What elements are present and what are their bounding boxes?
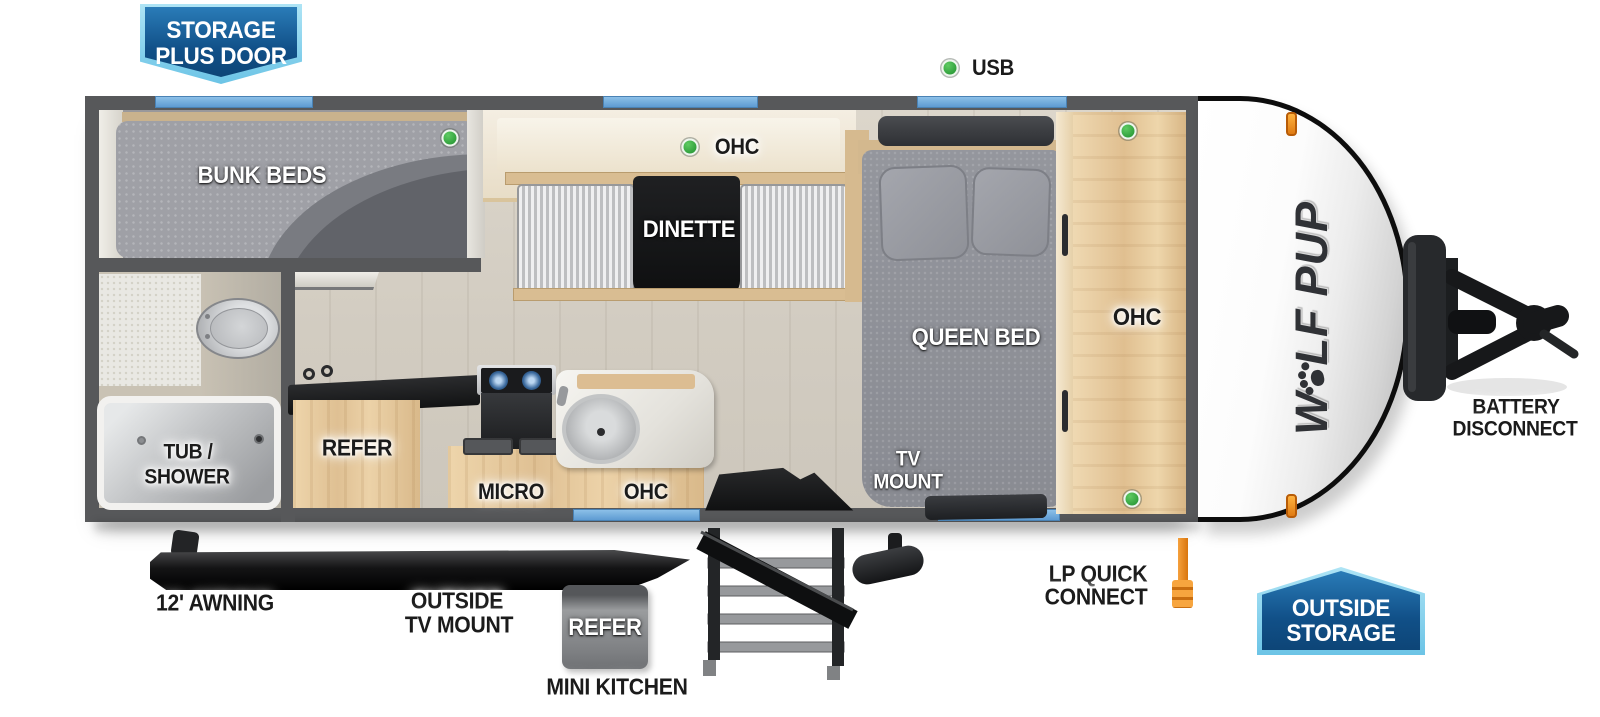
dinette-label: DINETTE [643, 218, 736, 242]
storage-plus-door-line2: PLUS DOOR [145, 43, 297, 71]
wolfpup-logo: WLFPUP [1286, 201, 1338, 435]
usb-indicator-dot [942, 60, 959, 77]
outside-tv-mount-label-line1: OUTSIDE [411, 590, 503, 613]
marker-light-bottom [1286, 494, 1297, 518]
bunk-indicator-dot [442, 130, 459, 147]
shower-knob-left [137, 436, 146, 445]
paw-print-icon [1309, 368, 1325, 386]
outside-storage-line1: OUTSIDE [1262, 595, 1420, 623]
sink-drain [597, 428, 605, 436]
tv-mount-label-line1: TV [896, 449, 920, 470]
lp-quick-connect-label-line2: CONNECT [1045, 586, 1148, 609]
wardrobe-handle-bottom [1062, 390, 1068, 432]
logo-letter-w: W [1286, 392, 1337, 435]
storage-plus-door-badge: STORAGE PLUS DOOR [140, 4, 302, 84]
kitchen-ohc-label: OHC [624, 481, 668, 503]
window-dinette [603, 96, 758, 108]
toilet-hinge-top [205, 314, 210, 319]
window-bedroom [917, 96, 1067, 108]
bedroom-ohc-label: OHC [1113, 306, 1161, 330]
logo-letters-lf: LF [1286, 309, 1337, 366]
bed-shelf-bar [878, 116, 1054, 146]
wardrobe-handle-top [1062, 214, 1068, 256]
outside-tv-mount-label-line2: TV MOUNT [405, 614, 513, 637]
trailer-ground-shadow [95, 522, 1200, 536]
dinette-ohc-label: OHC [715, 136, 759, 158]
floorplan-diagram: BUNK BEDS TUB / SHOWER REFER MICRO OHC O… [0, 0, 1600, 717]
pillow-right [970, 167, 1051, 258]
mini-kitchen-label: MINI KITCHEN [546, 676, 687, 699]
mini-kitchen-refer-label: REFER [568, 616, 641, 640]
bunk-mattress [116, 121, 477, 258]
lp-pipe [1178, 538, 1188, 584]
usb-label: USB [972, 57, 1014, 79]
lp-quick-connect-label-line1: LP QUICK [1049, 563, 1148, 586]
window-bunk [155, 96, 313, 108]
hitch-a-frame [1392, 222, 1592, 417]
toilet-hinge-bottom [205, 334, 210, 339]
outside-storage-line2: STORAGE [1262, 620, 1420, 648]
logo-letters-pup: PUP [1286, 201, 1337, 297]
counter-hook-2 [321, 365, 333, 377]
dinette-ohc-dot [682, 139, 699, 156]
window-kitchen [573, 509, 700, 521]
pillow-left [878, 164, 969, 261]
awning-tube [150, 550, 690, 590]
dinette-bench-left [517, 184, 635, 294]
bathroom-wall-panel [99, 274, 201, 386]
battery-disconnect-label-line1: BATTERY [1472, 397, 1559, 418]
sink-cutting-board [577, 374, 695, 389]
storage-plus-door-line1: STORAGE [145, 17, 297, 45]
micro-label: MICRO [478, 481, 544, 503]
under-bunk-ledge [289, 272, 379, 290]
lp-connector [1172, 580, 1193, 608]
dinette-ohc-face [497, 118, 840, 172]
entry-steps [693, 522, 868, 682]
refer-label: REFER [322, 437, 392, 460]
awning-label: 12' AWNING [156, 592, 274, 615]
wardrobe-dot-bottom [1124, 491, 1141, 508]
bunk-beds-label: BUNK BEDS [198, 164, 327, 188]
dinette-bench-right [740, 184, 848, 294]
dinette-table-trim-bottom [513, 288, 850, 301]
queen-bed-label: QUEEN BED [912, 326, 1041, 350]
stove-burner-left [489, 371, 508, 390]
outside-storage-badge: OUTSIDE STORAGE [1257, 567, 1425, 655]
tv-bar [925, 494, 1047, 520]
griddle-pad-left [463, 438, 513, 455]
toilet-seat [210, 308, 268, 349]
battery-disconnect-label-line2: DISCONNECT [1453, 419, 1578, 440]
tub-shower-label-line1: TUB / [163, 442, 212, 463]
stove-burner-right [522, 371, 541, 390]
wardrobe-dot-top [1120, 123, 1137, 140]
tv-mount-label-line2: MOUNT [873, 472, 942, 493]
counter-hook-1 [303, 368, 315, 380]
shower-knob-right [254, 434, 264, 444]
tub-shower-label-line2: SHOWER [144, 467, 229, 488]
marker-light-top [1286, 112, 1297, 136]
